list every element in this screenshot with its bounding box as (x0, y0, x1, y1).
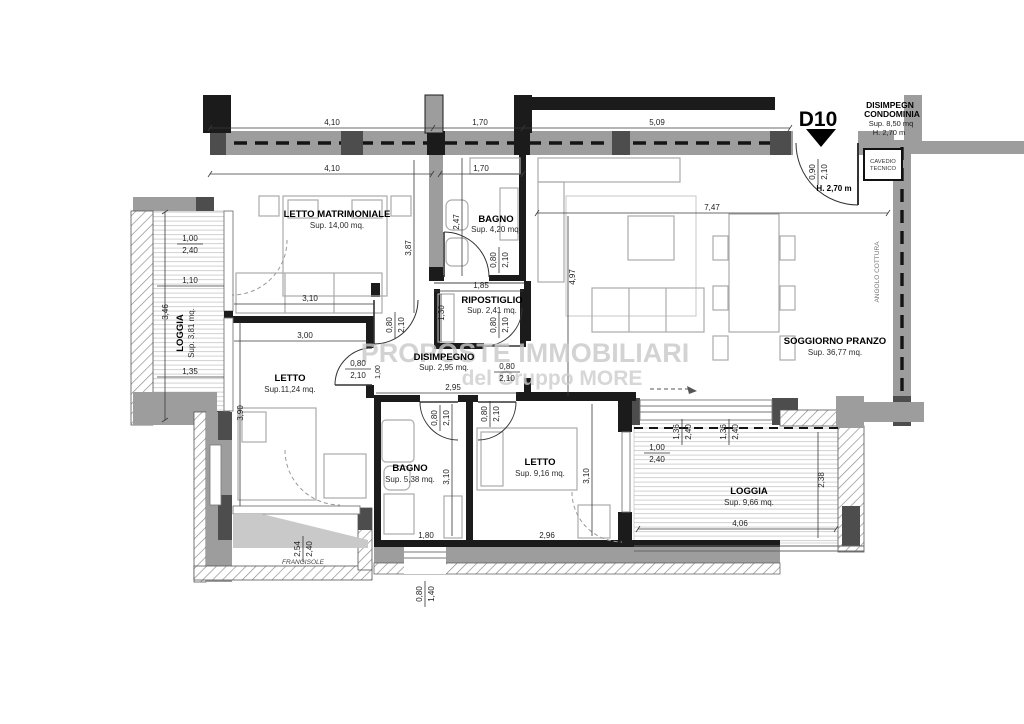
dim: 0,80 (430, 410, 439, 426)
room-loggia-left: LOGGIA (175, 314, 186, 352)
window-letto2-loggia (622, 432, 630, 512)
dim: 3,10 (302, 294, 318, 303)
dim: 4,97 (568, 269, 577, 285)
dim-fraction: 0,80 2,10 (480, 401, 501, 427)
room-loggia-right: LOGGIA (730, 486, 768, 497)
dim: 0,80 (499, 362, 515, 371)
floor-plan-drawing: PROPOSTE IMMOBILIARI del Gruppo MORE D10… (0, 0, 1024, 724)
dim: 2,38 (817, 472, 826, 488)
room-ripostiglio-area: Sup. 2,41 mq. (467, 306, 517, 315)
entry-arrow-icon (806, 129, 836, 147)
entry-height-label: H. 2,70 m (816, 184, 851, 193)
dim: 2,40 (182, 246, 198, 255)
dim: 0,80 (350, 359, 366, 368)
cavedio-label-1: CAVEDIO (870, 159, 896, 165)
room-letto-1-area: Sup.11,24 mq. (264, 385, 315, 394)
condominium-area: Sup. 8,50 mq (869, 119, 914, 128)
dim: 2,10 (501, 317, 510, 333)
dim: 3,10 (582, 468, 591, 484)
dim: 1,10 (182, 276, 198, 285)
dim: 2,10 (397, 317, 406, 333)
floor-plan-page: PROPOSTE IMMOBILIARI del Gruppo MORE D10… (0, 0, 1024, 724)
room-soggiorno: SOGGIORNO PRANZO (784, 336, 886, 347)
rug (566, 196, 696, 316)
dim: 1,00 (375, 365, 382, 379)
sofa-l-top (538, 158, 680, 182)
room-letto-2-area: Sup. 9,16 mq. (515, 469, 565, 478)
cavedio-label-2: TECNICO (870, 166, 897, 172)
single-bed (238, 408, 316, 500)
dim: 2,10 (350, 371, 366, 380)
dim-fraction: 0,80 2,10 (489, 312, 510, 338)
dim: 2,40 (684, 424, 693, 440)
window-soggiorno-loggia (640, 400, 772, 420)
letto2-loggia-door-arc (572, 492, 622, 542)
dim: 1,00 (182, 234, 198, 243)
condominium-height: H. 2,70 m (873, 128, 906, 137)
dim: 2,10 (820, 164, 829, 180)
room-letto-matrimoniale: LETTO MATRIMONIALE (284, 209, 391, 220)
dim: 0,80 (489, 317, 498, 333)
dim-fraction: 0,80 2,10 (430, 405, 451, 431)
dim: 2,10 (442, 410, 451, 426)
dining-table (729, 214, 779, 332)
room-letto-2: LETTO (525, 457, 556, 468)
room-letto-matrimoniale-area: Sup. 14,00 mq. (310, 221, 364, 230)
dim: 0,80 (415, 586, 424, 602)
dim: 2,40 (305, 541, 314, 557)
room-loggia-left-area: Sup. 3,81 mq. (187, 308, 196, 358)
window-loggia-left-upper (224, 211, 233, 311)
dim: 1,36 (719, 424, 728, 440)
bidet (446, 238, 468, 266)
window-frangisole (233, 506, 360, 514)
dim: 1,00 (649, 443, 665, 452)
dim: 2,10 (499, 374, 515, 383)
dim: 5,09 (649, 118, 665, 127)
dim: 0,80 (489, 252, 498, 268)
dim: 1,70 (473, 164, 489, 173)
room-letto-1: LETTO (275, 373, 306, 384)
dim: 2,40 (731, 424, 740, 440)
dim: 2,54 (293, 541, 302, 557)
dim: 3,87 (404, 240, 413, 256)
dim: 4,10 (324, 164, 340, 173)
dim: 2,10 (492, 406, 501, 422)
dim: 1,35 (182, 367, 198, 376)
room-bagno-1-area: Sup. 4,20 mq. (471, 225, 521, 234)
dim: 2,40 (649, 455, 665, 464)
dim: 1,40 (427, 586, 436, 602)
dim: 3,00 (297, 331, 313, 340)
sofa-l-side (538, 182, 564, 282)
dim-fraction: 0,80 2,10 (385, 312, 406, 338)
dim: 1,85 (473, 281, 489, 290)
angolo-cottura-label: ANGOLO COTTURA (874, 241, 881, 303)
dim: 1,36 (672, 424, 681, 440)
unit-code-label: D10 (799, 108, 838, 131)
room-soggiorno-area: Sup. 36,77 mq. (808, 348, 862, 357)
dim: 1,80 (418, 531, 434, 540)
dim: 3,10 (442, 469, 451, 485)
room-loggia-right-area: Sup. 9,66 mq. (724, 498, 774, 507)
window-loggia-left-lower (224, 318, 233, 411)
room-bagno-2: BAGNO (392, 463, 427, 474)
sliding-door-arrow (687, 386, 697, 394)
room-ripostiglio: RIPOSTIGLIO (461, 295, 522, 306)
sofa (592, 288, 704, 332)
dim: 4,06 (732, 519, 748, 528)
dim: 0,80 (385, 317, 394, 333)
watermark-line2: del Gruppo MORE (462, 367, 643, 390)
dim: 1,70 (472, 118, 488, 127)
dim-fraction: 0,80 2,10 (489, 247, 510, 273)
dim: 2,47 (452, 214, 461, 230)
watermark-line1: PROPOSTE IMMOBILIARI (361, 338, 690, 368)
dim: 2,96 (539, 531, 555, 540)
room-disimpegno: DISIMPEGNO (414, 352, 475, 363)
wardrobe (236, 273, 382, 313)
dim: 0,80 (480, 406, 489, 422)
dim: 2,95 (445, 383, 461, 392)
dim: 7,47 (704, 203, 720, 212)
dim: 3,90 (236, 405, 245, 421)
dim: 0,90 (808, 164, 817, 180)
room-bagno-2-area: Sup. 5,38 mq. (385, 475, 435, 484)
room-disimpegno-area: Sup. 2,95 mq. (419, 363, 469, 372)
dim: 4,10 (324, 118, 340, 127)
dim-fraction: 0,90 2,10 (808, 159, 829, 185)
coffee-table (628, 216, 674, 260)
dim: 2,10 (501, 252, 510, 268)
dim-fraction: 0,80 1,40 (415, 581, 436, 607)
dim: 1,30 (437, 305, 446, 321)
dim: 3,46 (161, 304, 170, 320)
room-bagno-1: BAGNO (478, 214, 513, 225)
loggia-french-door-arc (232, 240, 287, 295)
bagno1-door-arc (444, 232, 489, 277)
condominium-label-2: CONDOMINIA (864, 109, 920, 119)
letto1-loggia-door-arc (285, 450, 340, 505)
